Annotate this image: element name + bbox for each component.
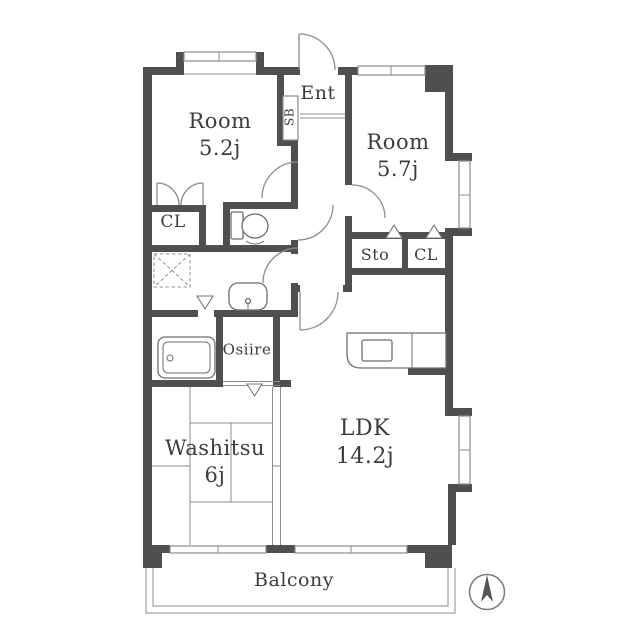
room-ne-label: Room 5.7j xyxy=(366,129,429,183)
closet-west-double-door-arcs xyxy=(157,183,203,205)
ldk-door-arc xyxy=(300,292,338,330)
room-ne-name: Room xyxy=(366,129,429,156)
bay-window-room-ne-right xyxy=(459,161,470,228)
washitsu-name: Washitsu xyxy=(165,435,265,462)
room-nw-size: 5.2j xyxy=(188,135,251,162)
washitsu-label: Washitsu 6j xyxy=(165,435,265,489)
bathroom-folding-door-marker xyxy=(197,296,213,309)
compass-icon xyxy=(470,575,505,610)
ldk-label: LDK 14.2j xyxy=(336,415,394,471)
entrance-step-lines xyxy=(300,114,345,118)
room-ne-size: 5.7j xyxy=(366,156,429,183)
closet-west-label: CL xyxy=(160,212,185,234)
window-room-ne-top xyxy=(358,66,425,75)
oshiire-door-marker xyxy=(247,384,262,396)
bathtub-icon xyxy=(158,337,215,378)
floor-plan: Room 5.2j Ent SB Room 5.7j CL Sto CL Osi… xyxy=(0,0,639,640)
room-ne-door-arc xyxy=(352,185,385,218)
balcony-window-ldk xyxy=(295,546,407,553)
balcony-window-washitsu xyxy=(170,546,266,553)
washitsu-ldk-partition xyxy=(273,387,281,545)
bay-window-ldk-right xyxy=(459,416,470,484)
kitchen-counter xyxy=(347,333,446,368)
balcony-label: Balcony xyxy=(254,568,334,592)
shoe-box-label: SB xyxy=(282,108,297,126)
ldk-name: LDK xyxy=(336,415,394,443)
ldk-size: 14.2j xyxy=(336,443,394,471)
toilet-door-arc xyxy=(298,205,333,240)
toilet-icon xyxy=(231,212,268,244)
storage-door-marker xyxy=(386,225,402,238)
entrance-label: Ent xyxy=(300,81,335,105)
oshiire-label: Osiire xyxy=(223,340,272,359)
closet-east-door-marker xyxy=(426,225,442,238)
closet-east-label: CL xyxy=(414,245,438,265)
washbasin-icon xyxy=(229,283,267,310)
room-nw-label: Room 5.2j xyxy=(188,108,251,162)
storage-label: Sto xyxy=(361,245,390,265)
room-nw-name: Room xyxy=(188,108,251,135)
washitsu-size: 6j xyxy=(165,462,265,489)
bay-window-room-nw xyxy=(184,52,256,74)
entrance-door-arc xyxy=(299,34,335,70)
washing-machine-space xyxy=(154,254,190,287)
